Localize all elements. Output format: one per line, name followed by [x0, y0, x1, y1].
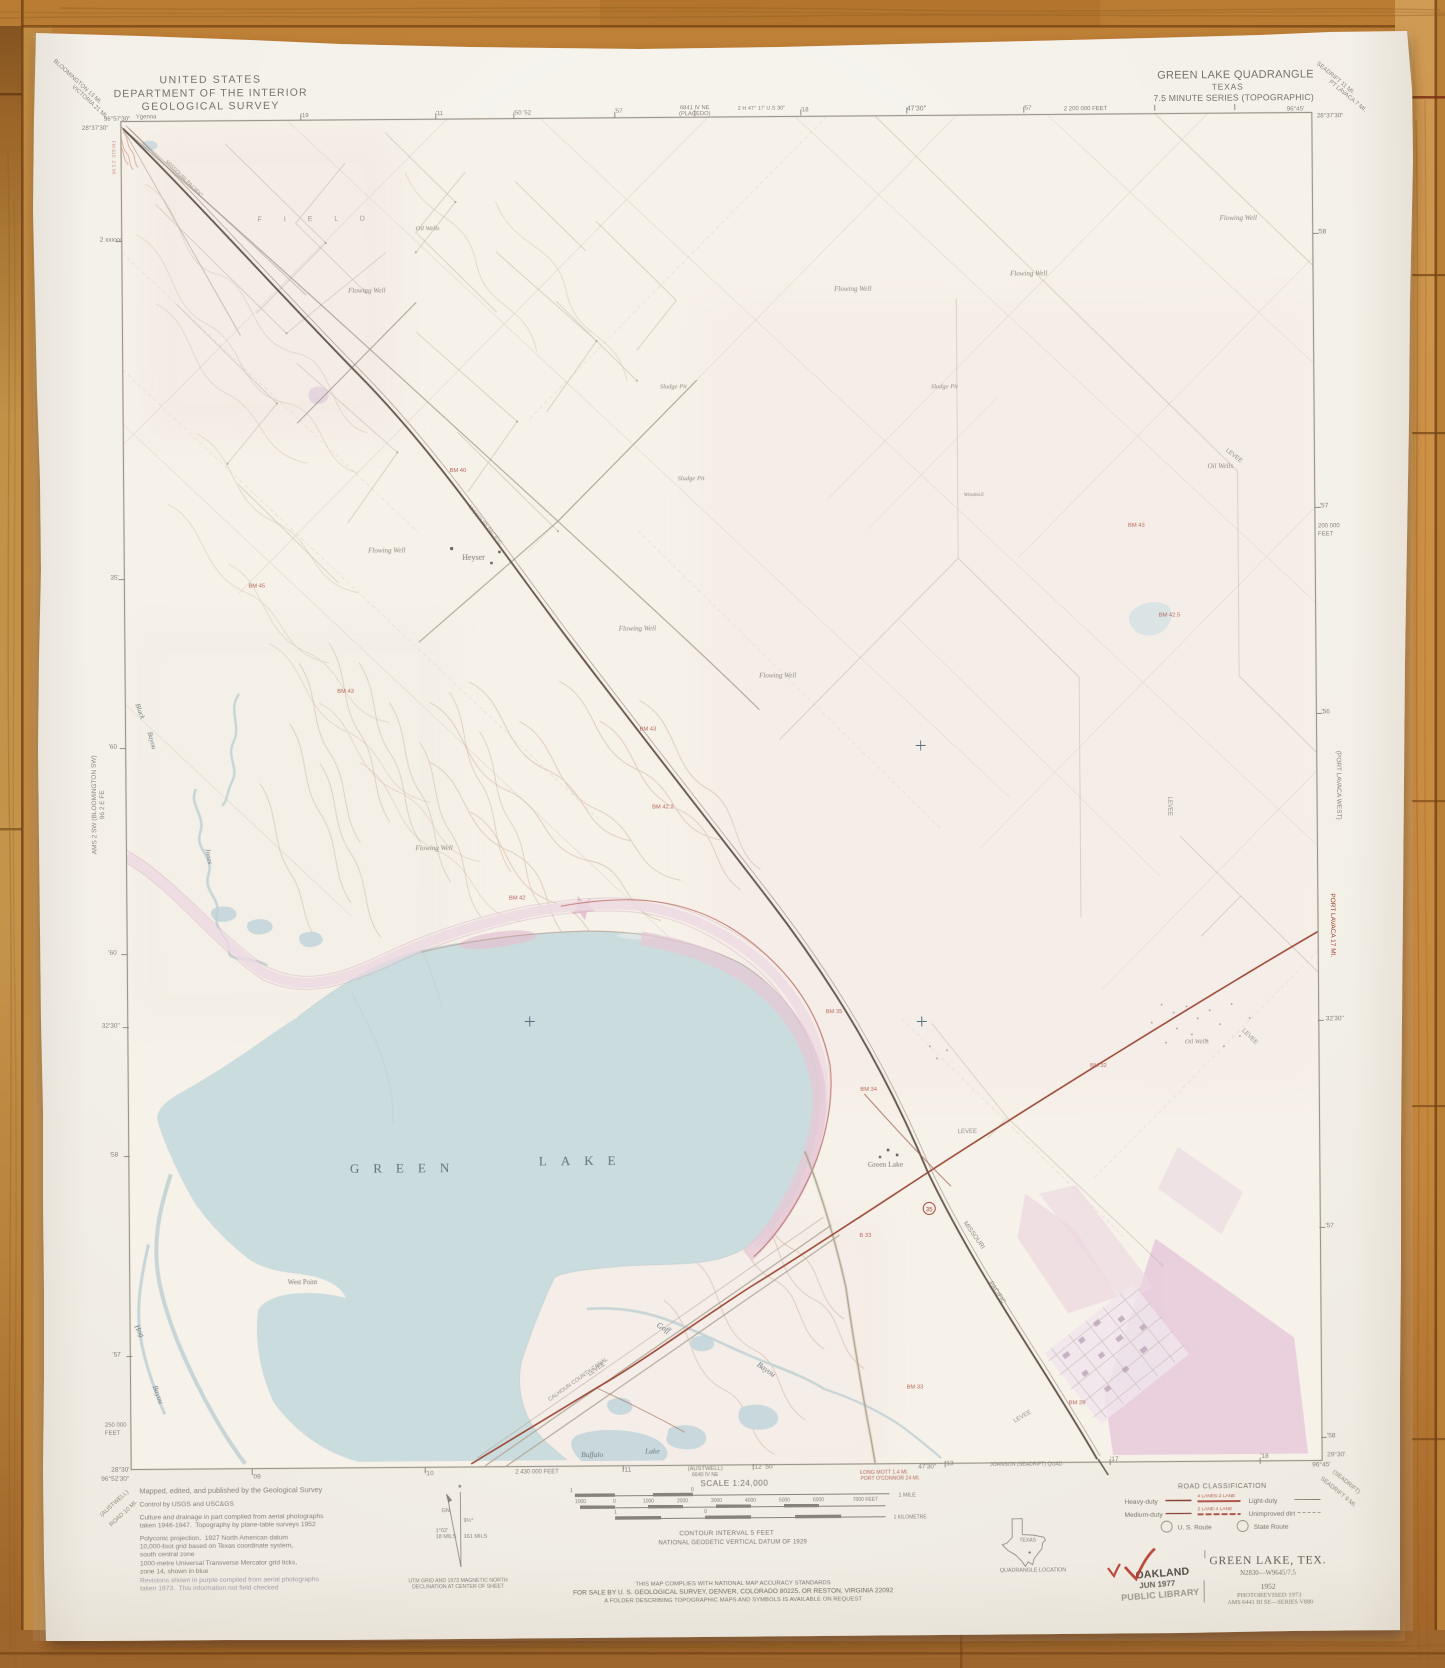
svg-text:DEPARTMENT OF THE INTERIOR: DEPARTMENT OF THE INTERIOR [114, 87, 308, 100]
svg-text:State Route: State Route [1254, 1524, 1289, 1531]
svg-text:Flowing Well: Flowing Well [758, 671, 796, 679]
svg-text:1000-metre Universal Transvers: 1000-metre Universal Transverse Mercator… [140, 1559, 297, 1567]
svg-text:BM 35: BM 35 [826, 1009, 843, 1015]
svg-text:Polyconic projection. 1927 No: Polyconic projection. 1927 North America… [140, 1534, 289, 1542]
svg-text:28°37'30": 28°37'30" [1317, 112, 1344, 119]
svg-text:Green Lake: Green Lake [868, 1160, 904, 1169]
svg-text:4000: 4000 [745, 1498, 756, 1504]
svg-text:Flowing Well: Flowing Well [833, 285, 871, 293]
svg-text:LEVEE: LEVEE [958, 1129, 977, 1135]
svg-text:'57: '57 [1320, 502, 1329, 509]
svg-text:Buffalo: Buffalo [581, 1450, 603, 1459]
svg-text:Windmill: Windmill [964, 492, 984, 498]
svg-text:Oil Wells: Oil Wells [1185, 1038, 1209, 1045]
svg-text:GN: GN [442, 1508, 450, 1514]
svg-text:'60: '60 [109, 744, 118, 751]
svg-text:2000: 2000 [677, 1498, 688, 1504]
svg-text:18 MILS: 18 MILS [436, 1534, 457, 1540]
svg-text:7.5 MINUTE SERIES (TOPOGRAPHIC: 7.5 MINUTE SERIES (TOPOGRAPHIC) [1153, 92, 1314, 103]
svg-text:south central zone: south central zone [140, 1551, 195, 1558]
svg-text:SCALE 1:24,000: SCALE 1:24,000 [700, 1479, 768, 1489]
svg-text:Culture and drainage in part c: Culture and drainage in part compiled fr… [140, 1513, 325, 1521]
svg-text:BM 33: BM 33 [907, 1384, 924, 1390]
svg-text:Unimproved dirt: Unimproved dirt [1249, 1511, 1296, 1518]
svg-text:Medium-duty: Medium-duty [1125, 1512, 1164, 1519]
svg-text:BM 40: BM 40 [450, 468, 467, 474]
svg-text:Sludge Pit: Sludge Pit [678, 475, 705, 482]
svg-text:'19: '19 [301, 113, 310, 119]
svg-text:JOHNSON (SEADRIFT) QUAD: JOHNSON (SEADRIFT) QUAD [990, 1461, 1063, 1468]
svg-text:QUADRANGLE LOCATION: QUADRANGLE LOCATION [1000, 1567, 1067, 1574]
svg-text:3000: 3000 [711, 1498, 722, 1504]
svg-text:28°30': 28°30' [111, 1466, 129, 1474]
svg-text:2 H 47° 17' U.S 30": 2 H 47° 17' U.S 30" [738, 105, 785, 111]
svg-text:47'30": 47'30" [918, 1463, 937, 1470]
svg-text:'57: '57 [1325, 1222, 1334, 1229]
svg-text:1000: 1000 [643, 1499, 654, 1505]
svg-text:1: 1 [614, 1510, 617, 1516]
svg-text:GREEN LAKE QUADRANGLE: GREEN LAKE QUADRANGLE [1157, 68, 1314, 81]
svg-text:Flowing Well: Flowing Well [414, 844, 452, 852]
svg-text:Sludge Pit: Sludge Pit [660, 383, 687, 390]
svg-text:BM 42.5: BM 42.5 [1159, 612, 1181, 618]
svg-text:TEXAS: TEXAS [1019, 1538, 1036, 1544]
svg-text:'58: '58 [1318, 228, 1327, 235]
svg-text:'60: '60 [108, 950, 117, 957]
svg-text:Flowing Well: Flowing Well [1009, 269, 1047, 277]
svg-text:'57: '57 [1024, 106, 1033, 112]
svg-text:CONTOUR INTERVAL 5 FEET: CONTOUR INTERVAL 5 FEET [679, 1530, 774, 1538]
svg-text:'11: '11 [623, 1467, 631, 1474]
svg-text:6640 IV NE: 6640 IV NE [692, 1472, 719, 1478]
svg-text:32'30": 32'30" [1326, 1015, 1345, 1022]
svg-text:U. S. Route: U. S. Route [1178, 1524, 1212, 1531]
svg-text:BM 42: BM 42 [509, 896, 526, 902]
svg-text:GEOLOGICAL SURVEY: GEOLOGICAL SURVEY [142, 100, 280, 113]
svg-text:Flowing Well: Flowing Well [347, 287, 385, 295]
svg-text:2 430 000 FEET: 2 430 000 FEET [515, 1469, 559, 1475]
svg-text:FEET: FEET [105, 1431, 121, 1437]
svg-text:1952: 1952 [1261, 1582, 1276, 1591]
svg-text:Revisions shown in purple comp: Revisions shown in purple compiled from … [140, 1576, 320, 1584]
svg-text:BM 43: BM 43 [640, 726, 657, 732]
svg-text:B 33: B 33 [859, 1233, 871, 1239]
svg-text:Control by USGS and USC&GS: Control by USGS and USC&GS [139, 1501, 234, 1509]
svg-text:1: 1 [570, 1488, 573, 1494]
svg-text:BM 42.2: BM 42.2 [652, 804, 674, 810]
svg-text:7000 FEET: 7000 FEET [853, 1497, 878, 1503]
svg-text:0: 0 [613, 1499, 616, 1505]
svg-text:4 LANES-2 LANE: 4 LANES-2 LANE [1197, 1493, 1235, 1499]
svg-text:Flowing Well: Flowing Well [1219, 214, 1257, 222]
svg-text:AMS 6441 III SE—SERIES V880: AMS 6441 III SE—SERIES V880 [1227, 1598, 1313, 1606]
svg-text:FEET: FEET [1318, 531, 1334, 537]
svg-text:F I E L D: F I E L D [258, 216, 375, 224]
svg-text:96°45': 96°45' [1287, 106, 1304, 113]
svg-text:'58: '58 [110, 1152, 119, 1159]
svg-text:LEVEE: LEVEE [1166, 797, 1172, 816]
svg-text:Heyser: Heyser [462, 553, 485, 562]
svg-text:96°45': 96°45' [1312, 1460, 1330, 1468]
svg-text:BM 43: BM 43 [337, 689, 354, 695]
svg-text:★: ★ [457, 1483, 462, 1490]
svg-text:GREEN LAKE, TEX.: GREEN LAKE, TEX. [1209, 1554, 1326, 1567]
svg-text:BM 43: BM 43 [1128, 523, 1145, 529]
svg-text:LAKE: LAKE [539, 1153, 630, 1169]
svg-text:32'30": 32'30" [102, 1023, 121, 1030]
svg-text:BM 45: BM 45 [248, 583, 265, 589]
svg-text:2 LANE-4 LANE: 2 LANE-4 LANE [1198, 1506, 1233, 1512]
svg-text:PORT O'CONNOR 24 MI.: PORT O'CONNOR 24 MI. [860, 1475, 920, 1481]
svg-text:FM 616 2.5 MI.: FM 616 2.5 MI. [110, 141, 116, 176]
svg-text:10,000-foot grid based on Texa: 10,000-foot grid based on Texas coordina… [140, 1542, 294, 1550]
svg-text:96 2 E FE: 96 2 E FE [99, 790, 106, 820]
svg-text:1 KILOMETRE: 1 KILOMETRE [894, 1514, 928, 1520]
svg-text:Flowing Well: Flowing Well [367, 546, 405, 554]
svg-text:9½°: 9½° [464, 1517, 474, 1524]
svg-text:'18: '18 [1260, 1453, 1269, 1460]
svg-text:'17: '17 [1110, 1456, 1119, 1463]
svg-text:5000: 5000 [779, 1497, 790, 1503]
svg-text:28°37'30": 28°37'30" [82, 125, 109, 132]
svg-text:TEXAS: TEXAS [1212, 81, 1244, 91]
svg-text:Flowing Well: Flowing Well [618, 624, 656, 632]
svg-text:NATIONAL GEODETIC VERTICAL DAT: NATIONAL GEODETIC VERTICAL DATUM OF 1929 [658, 1539, 807, 1546]
svg-text:Ygenna: Ygenna [136, 114, 157, 120]
svg-text:Oil Wells: Oil Wells [1207, 462, 1233, 470]
svg-text:Lake: Lake [644, 1446, 660, 1455]
svg-text:35: 35 [926, 1207, 933, 1213]
svg-text:BM 34: BM 34 [860, 1087, 878, 1093]
svg-text:1000: 1000 [575, 1499, 586, 1505]
svg-text:1 MILE: 1 MILE [898, 1493, 916, 1499]
svg-text:6000: 6000 [813, 1497, 824, 1503]
svg-text:'13: '13 [945, 1460, 954, 1467]
svg-text:Heavy-duty: Heavy-duty [1124, 1499, 1158, 1506]
svg-text:zone 14, shown in blue: zone 14, shown in blue [140, 1568, 209, 1576]
svg-text:250 000: 250 000 [105, 1423, 127, 1429]
svg-text:'57: '57 [615, 109, 624, 115]
svg-text:BM 32: BM 32 [1090, 1063, 1107, 1069]
svg-text:'11: '11 [436, 111, 444, 117]
svg-text:35': 35' [110, 575, 119, 582]
svg-text:PORT LAVACA 17 MI.: PORT LAVACA 17 MI. [1329, 893, 1336, 957]
svg-text:AMS 2 SW (BLOOMINGTON SW): AMS 2 SW (BLOOMINGTON SW) [91, 755, 99, 854]
svg-text:'57: '57 [112, 1352, 121, 1359]
svg-text:Oil Wells: Oil Wells [416, 225, 440, 232]
svg-text:ROAD CLASSIFICATION: ROAD CLASSIFICATION [1178, 1483, 1267, 1491]
svg-text:0: 0 [704, 1509, 707, 1515]
svg-text:GREEN: GREEN [350, 1160, 463, 1176]
svg-text:taken 1973. This information: taken 1973. This information not field c… [140, 1584, 278, 1592]
svg-text:'50 '52: '50 '52 [514, 110, 532, 116]
svg-text:96°52'30": 96°52'30" [101, 1475, 130, 1483]
svg-text:(PORT LAVACA WEST): (PORT LAVACA WEST) [1335, 751, 1343, 820]
svg-text:Sludge Pit: Sludge Pit [931, 383, 958, 390]
svg-text:'58: '58 [1327, 1432, 1336, 1439]
svg-text:UNITED STATES: UNITED STATES [159, 74, 261, 87]
svg-text:0: 0 [691, 1487, 694, 1493]
svg-text:47'30": 47'30" [907, 105, 927, 112]
svg-text:taken 1946-1947. Topography b: taken 1946-1947. Topography by plane-tab… [140, 1521, 316, 1529]
svg-text:29°30': 29°30' [1327, 1450, 1345, 1458]
svg-text:N2830—W9645/7.5: N2830—W9645/7.5 [1240, 1570, 1296, 1577]
svg-text:Mapped, edited, and published: Mapped, edited, and published by the Geo… [139, 1485, 322, 1495]
svg-text:'18: '18 [801, 107, 810, 113]
svg-text:'09: '09 [252, 1474, 261, 1481]
svg-text:BM 29: BM 29 [1069, 1400, 1086, 1406]
svg-text:'56: '56 [1321, 708, 1330, 715]
svg-text:'10: '10 [425, 1470, 434, 1477]
svg-text:Light-duty: Light-duty [1248, 1498, 1278, 1505]
svg-text:2 200 000 FEET: 2 200 000 FEET [1064, 106, 1108, 112]
svg-text:'12 50': '12 50' [753, 1464, 774, 1471]
svg-text:200 000: 200 000 [1318, 523, 1340, 529]
svg-text:161 MILS: 161 MILS [464, 1534, 488, 1540]
svg-text:West Point: West Point [288, 1279, 318, 1286]
svg-text:DECLINATION AT CENTER OF SHEET: DECLINATION AT CENTER OF SHEET [412, 1584, 505, 1591]
